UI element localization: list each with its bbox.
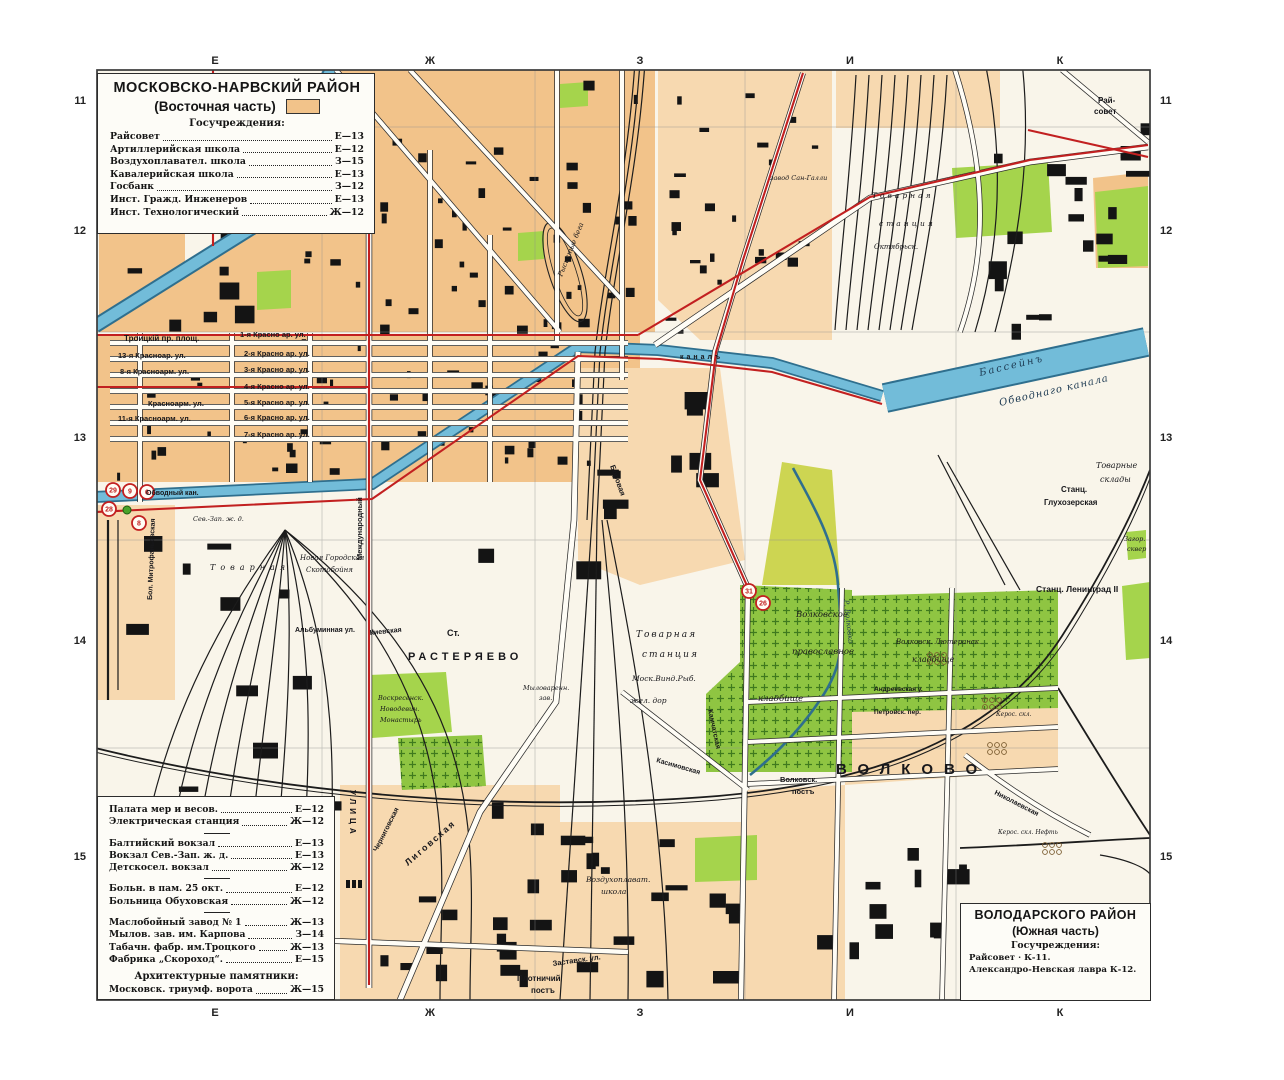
map-label: Петровск. пер.	[874, 709, 921, 716]
map-label: Новодевич.	[379, 705, 419, 713]
grid-row-label: 12	[74, 225, 86, 237]
map-label: 3-я Красно ар. ул.	[244, 365, 310, 374]
map-label: Загор.	[1124, 535, 1145, 543]
map-label: жел. дор	[630, 696, 667, 705]
legend-item-label: Инст. Технологический	[110, 207, 239, 220]
map-label: Волковск. Лютеранск.	[895, 638, 981, 646]
map-label: Товарная	[210, 563, 290, 572]
tram-route-number: 26	[759, 601, 767, 608]
legend-item-ref: Ж—13	[290, 942, 324, 954]
map-label: завод Сан-Галли	[770, 174, 827, 182]
grid-row-label: 12	[1160, 225, 1172, 237]
legend-item-ref: З—12	[335, 181, 364, 194]
triumphal-gate-icon	[358, 880, 362, 888]
legend-item-label: Фабрика „Скороход“.	[109, 954, 223, 966]
map-label: 13-я Красноар. ул.	[118, 351, 186, 360]
map-label: Монастырь	[379, 716, 422, 724]
map-label: Новая Городская	[299, 554, 365, 562]
map-label: Андреевская у.	[874, 686, 923, 693]
legend-divider	[204, 833, 230, 834]
grid-col-label: Е	[211, 1007, 218, 1019]
legend-item: Больница ОбуховскаяЖ—12	[109, 896, 324, 908]
dotted-leader	[256, 993, 287, 994]
legend-item: Табачн. фабр. им.ТроцкогоЖ—13	[109, 942, 324, 954]
grid-row-label: 11	[1160, 95, 1172, 107]
legend-item: Райсовет · К-11.	[969, 952, 1142, 964]
map-label: Альбуминная ул.	[295, 626, 355, 634]
map-label: ВОЛКОВО	[836, 761, 988, 778]
map-label: Керос. скл. Нефть	[997, 829, 1058, 836]
dotted-leader	[226, 962, 292, 963]
map-label: школа	[601, 887, 626, 896]
legend-item-label: Палата мер и весов.	[109, 804, 218, 816]
map-label: Международный	[355, 497, 364, 560]
map-label: Товарная	[636, 630, 697, 640]
legend-item-label: Инст. Гражд. Инженеров	[110, 194, 247, 207]
grid-row-label: 14	[74, 635, 87, 647]
map-label: 8-я Красноарм. ул.	[120, 367, 189, 376]
grid-col-label: З	[637, 55, 644, 67]
grid-col-label: И	[846, 1007, 854, 1019]
map-sheet: 29962883126Троицкій пр. площ.1-я Красно …	[0, 0, 1284, 1080]
map-label: Воздухоплават.	[585, 875, 650, 884]
legend-item-label: Александро-Невская лавра К-12.	[969, 964, 1136, 976]
legend-item-label: Электрическая станция	[109, 816, 239, 828]
legend-item-label: Райсовет	[110, 131, 160, 144]
legend-item-ref: Е—13	[335, 194, 364, 207]
tram-route-number: 31	[745, 589, 753, 596]
map-label: 5-я Красно ар. ул.	[244, 398, 310, 407]
legend-item-ref: Ж—12	[290, 862, 324, 874]
legend-item-ref: Ж—12	[290, 896, 324, 908]
legend-item: Больн. в пам. 25 окт.Е—12	[109, 883, 324, 895]
map-label: кладбище	[912, 655, 955, 664]
legend-item: Маслобойный завод № 1Ж—13	[109, 917, 324, 929]
dotted-leader	[221, 812, 292, 813]
grid-row-label: 13	[74, 432, 86, 444]
map-label: 7-я Красно ар. ул.	[244, 430, 310, 439]
grid-row-label: 13	[1160, 432, 1172, 444]
grid-col-label: И	[846, 55, 854, 67]
map-label: 1-я Красно ар. ул.	[240, 330, 306, 339]
tram-route-number: 29	[109, 488, 117, 495]
dotted-leader	[242, 825, 287, 826]
legend-nw-subtitle: (Восточная часть)	[154, 99, 276, 114]
tram-park-symbol	[123, 506, 131, 514]
legend-sw-groups: Палата мер и весов.Е—12Электрическая ста…	[109, 804, 324, 966]
map-label: склады	[1100, 475, 1131, 484]
dotted-leader	[250, 203, 331, 204]
map-label: сквер	[1127, 545, 1147, 553]
legend-item-ref: Е—12	[295, 804, 324, 816]
tram-route-number: 9	[128, 489, 132, 496]
map-label: православное	[792, 647, 854, 657]
legend-item-ref: Е—12	[295, 883, 324, 895]
legend-divider	[204, 878, 230, 879]
legend-item-label: Артиллерийская школа	[110, 144, 240, 157]
map-label: зав.	[539, 694, 552, 702]
legend-item-ref: Ж—15	[290, 984, 324, 996]
grid-col-label: Е	[211, 55, 218, 67]
map-label: Воскресенск.	[377, 694, 424, 702]
map-label: УЛИЦА	[348, 790, 357, 838]
dotted-leader	[231, 858, 292, 859]
legend-divider	[204, 912, 230, 913]
legend-item: Мылов. зав. им. КарповаЗ—14	[109, 929, 324, 941]
legend-nw-section: Госучреждения:	[110, 118, 364, 129]
legend-sw-arch-title: Архитектурные памятники:	[109, 971, 324, 982]
tram-route-number: 8	[137, 521, 141, 528]
legend-item-label: Московск. триумф. ворота	[109, 984, 253, 996]
map-label: 11-я Красноарм. ул.	[118, 414, 191, 423]
map-label: Обводный кан.	[146, 489, 199, 497]
map-label: Октябрьск.	[874, 243, 918, 251]
legend-se-section: Госучреждения:	[969, 940, 1142, 951]
legend-item-label: Больница Обуховская	[109, 896, 228, 908]
map-label: Рай-	[1098, 96, 1116, 105]
map-label: Товарные	[1096, 461, 1137, 470]
grid-row-label: 15	[1160, 851, 1172, 863]
legend-item-ref: Е—12	[335, 144, 364, 157]
legend-item: Палата мер и весов.Е—12	[109, 804, 324, 816]
legend-item-label: Кавалерийская школа	[110, 169, 234, 182]
legend-item-label: Воздухоплавател. школа	[110, 156, 246, 169]
district-color-swatch	[286, 99, 320, 114]
map-label: Ст.	[447, 628, 460, 638]
grid-col-label: Ж	[424, 1007, 435, 1019]
legend-nw-title: МОСКОВСКО-НАРВСКИЙ РАЙОН	[110, 80, 364, 96]
map-label: Керос. скл.	[995, 711, 1032, 718]
dotted-leader	[248, 938, 292, 939]
legend-item: РайсоветЕ—13	[110, 131, 364, 144]
legend-institutions-list: Палата мер и весов.Е—12Электрическая ста…	[97, 796, 335, 1000]
map-label: 6-я Красно ар. ул.	[244, 413, 310, 422]
triumphal-gate-icon	[352, 880, 356, 888]
legend-item-ref: Ж—12	[330, 207, 364, 220]
grid-col-label: К	[1057, 1007, 1064, 1019]
legend-item-label: Райсовет · К-11.	[969, 952, 1050, 964]
dotted-leader	[231, 904, 287, 905]
legend-moskovsko-narvsky: МОСКОВСКО-НАРВСКИЙ РАЙОН (Восточная част…	[97, 73, 375, 234]
map-label: постъ	[531, 986, 555, 995]
grid-row-label: 11	[74, 95, 86, 107]
dotted-leader	[218, 846, 292, 847]
legend-item: Балтийский вокзалЕ—13	[109, 838, 324, 850]
legend-item: Артиллерийская школаЕ—12	[110, 144, 364, 157]
map-label: Товарная	[872, 191, 934, 200]
legend-se-subtitle: (Южная часть)	[969, 924, 1142, 938]
grid-col-label: Ж	[424, 55, 435, 67]
legend-volodarsky: ВОЛОДАРСКОГО РАЙОН (Южная часть) Госучре…	[960, 903, 1151, 1001]
map-label: Скотобойня	[306, 566, 353, 574]
dotted-leader	[212, 870, 287, 871]
legend-item: Вокзал Сев.-Зап. ж. д.Е—13	[109, 850, 324, 862]
legend-item: Детскосел. вокзалЖ—12	[109, 862, 324, 874]
map-label: станция	[879, 219, 936, 228]
legend-item-label: Балтийский вокзал	[109, 838, 215, 850]
map-label: Красноарм. ул.	[148, 399, 204, 408]
legend-item: Воздухоплавател. школаЗ—15	[110, 156, 364, 169]
legend-item-label: Табачн. фабр. им.Троцкого	[109, 942, 256, 954]
dotted-leader	[157, 190, 332, 191]
map-label: кладбище	[758, 693, 803, 704]
legend-item-label: Больн. в пам. 25 окт.	[109, 883, 223, 895]
dotted-leader	[245, 925, 287, 926]
legend-item-label: Маслобойный завод № 1	[109, 917, 242, 929]
map-label: Плотничий	[517, 974, 561, 983]
dotted-leader	[249, 165, 332, 166]
legend-item: Фабрика „Скороход“.Е—15	[109, 954, 324, 966]
legend-item-label: Госбанк	[110, 181, 154, 194]
legend-item-ref: Е—13	[335, 169, 364, 182]
map-label: Моск.Винд.Рыб.	[631, 674, 696, 683]
map-label: Волковск.	[780, 775, 817, 784]
legend-item-ref: Е—13	[295, 850, 324, 862]
legend-item: Александро-Невская лавра К-12.	[969, 964, 1142, 976]
map-label: РАСТЕРЯЕВО	[408, 651, 522, 663]
map-label: постъ	[792, 787, 815, 796]
map-label: Троицкій пр. площ.	[124, 334, 199, 343]
dotted-leader	[259, 950, 287, 951]
grid-row-label: 15	[74, 851, 86, 863]
legend-item-ref: Е—13	[295, 838, 324, 850]
map-label: Сев.-Зап. ж. д.	[193, 515, 244, 523]
dotted-leader	[163, 140, 332, 141]
legend-item-ref: Ж—13	[290, 917, 324, 929]
legend-item: ГосбанкЗ—12	[110, 181, 364, 194]
map-label: 4-я Красно ар. ул.	[244, 382, 310, 391]
map-label: Станц.	[1061, 485, 1087, 494]
map-label: станция	[642, 650, 699, 660]
legend-se-items: Райсовет · К-11.Александро-Невская лавра…	[969, 952, 1142, 976]
map-label: совет	[1094, 107, 1116, 116]
dotted-leader	[242, 215, 326, 216]
legend-item-label: Мылов. зав. им. Карпова	[109, 929, 245, 941]
map-label: каналъ	[680, 354, 723, 361]
triumphal-gate-icon	[346, 880, 350, 888]
dotted-leader	[243, 152, 332, 153]
grid-col-label: З	[637, 1007, 644, 1019]
map-label: Волковское	[795, 610, 848, 620]
legend-item-ref: Е—15	[295, 954, 324, 966]
grid-row-label: 14	[1160, 635, 1173, 647]
legend-nw-items: РайсоветЕ—13Артиллерийская школаЕ—12Возд…	[110, 131, 364, 219]
legend-item: Московск. триумф. воротаЖ—15	[109, 984, 324, 996]
legend-item-label: Вокзал Сев.-Зап. ж. д.	[109, 850, 228, 862]
legend-se-title: ВОЛОДАРСКОГО РАЙОН	[969, 908, 1142, 922]
tram-route-number: 28	[105, 507, 113, 514]
grid-col-label: К	[1057, 55, 1064, 67]
map-label: Мыловаренн.	[522, 684, 569, 692]
legend-item-label: Детскосел. вокзал	[109, 862, 209, 874]
legend-item: Инст. ТехнологическийЖ—12	[110, 207, 364, 220]
map-label: Глухозерская	[1044, 498, 1098, 507]
legend-item-ref: Ж—12	[290, 816, 324, 828]
legend-item-ref: З—15	[335, 156, 364, 169]
legend-item: Электрическая станцияЖ—12	[109, 816, 324, 828]
legend-sw-arch-items: Московск. триумф. воротаЖ—15	[109, 984, 324, 996]
dotted-leader	[226, 892, 292, 893]
legend-item-ref: Е—13	[335, 131, 364, 144]
legend-item: Инст. Гражд. ИнженеровЕ—13	[110, 194, 364, 207]
dotted-leader	[237, 177, 332, 178]
legend-item-ref: З—14	[295, 929, 324, 941]
map-label: Станц. Ленинград II	[1036, 584, 1118, 594]
map-label: 2-я Красно ар. ул.	[244, 349, 310, 358]
legend-item: Кавалерийская школаЕ—13	[110, 169, 364, 182]
